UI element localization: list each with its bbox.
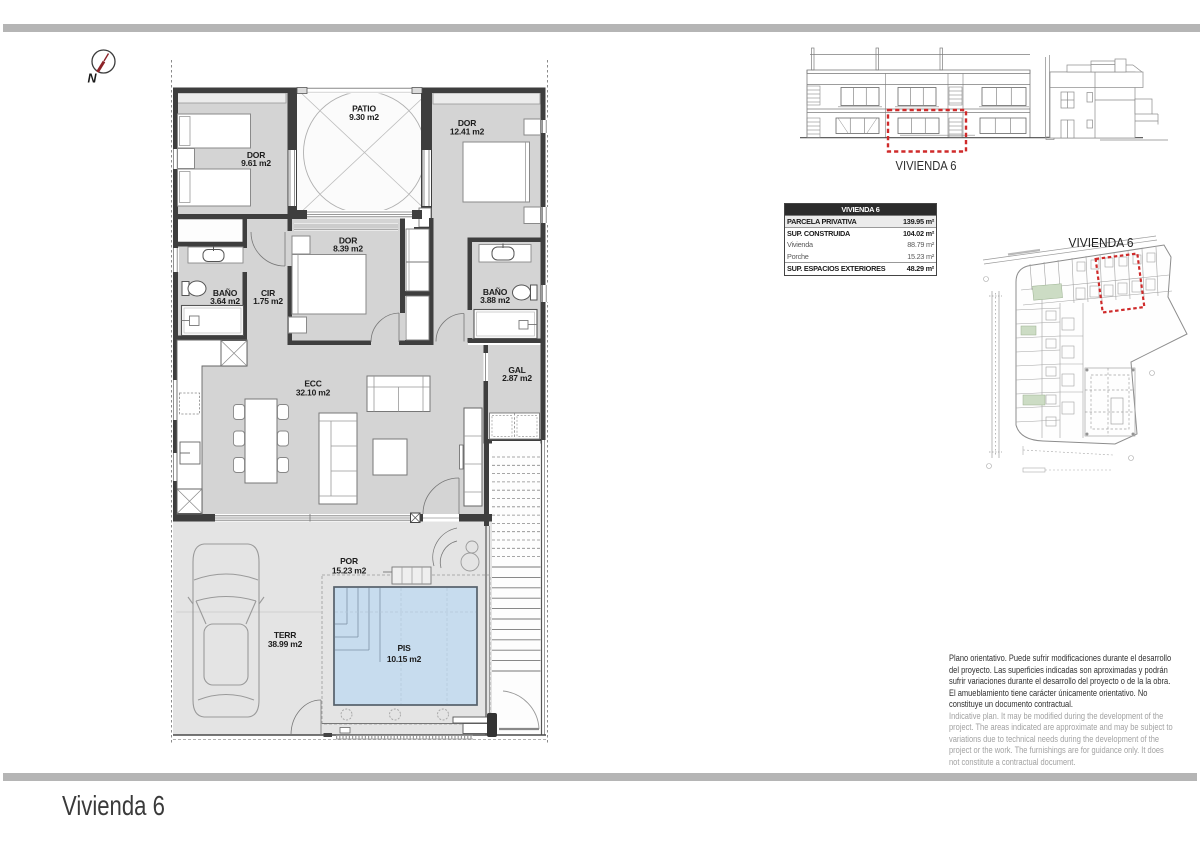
svg-text:VIVIENDA 6: VIVIENDA 6 bbox=[1069, 236, 1134, 250]
svg-text:3.88 m2: 3.88 m2 bbox=[480, 295, 510, 305]
svg-text:32.10 m2: 32.10 m2 bbox=[296, 388, 331, 398]
svg-text:15.23 m2: 15.23 m2 bbox=[332, 566, 367, 576]
svg-text:2.87 m2: 2.87 m2 bbox=[502, 373, 532, 383]
svg-text:PIS: PIS bbox=[397, 643, 411, 653]
svg-text:VIVIENDA 6: VIVIENDA 6 bbox=[896, 159, 957, 173]
svg-text:3.64 m2: 3.64 m2 bbox=[210, 296, 240, 306]
svg-text:12.41 m2: 12.41 m2 bbox=[450, 127, 485, 137]
svg-text:9.61 m2: 9.61 m2 bbox=[241, 158, 271, 168]
svg-text:N: N bbox=[88, 72, 98, 86]
svg-text:POR: POR bbox=[340, 556, 358, 566]
svg-text:38.99 m2: 38.99 m2 bbox=[268, 639, 303, 649]
svg-text:8.39 m2: 8.39 m2 bbox=[333, 244, 363, 254]
svg-text:9.30 m2: 9.30 m2 bbox=[349, 112, 379, 122]
svg-text:1.75 m2: 1.75 m2 bbox=[253, 296, 283, 306]
svg-text:10.15 m2: 10.15 m2 bbox=[387, 654, 422, 664]
